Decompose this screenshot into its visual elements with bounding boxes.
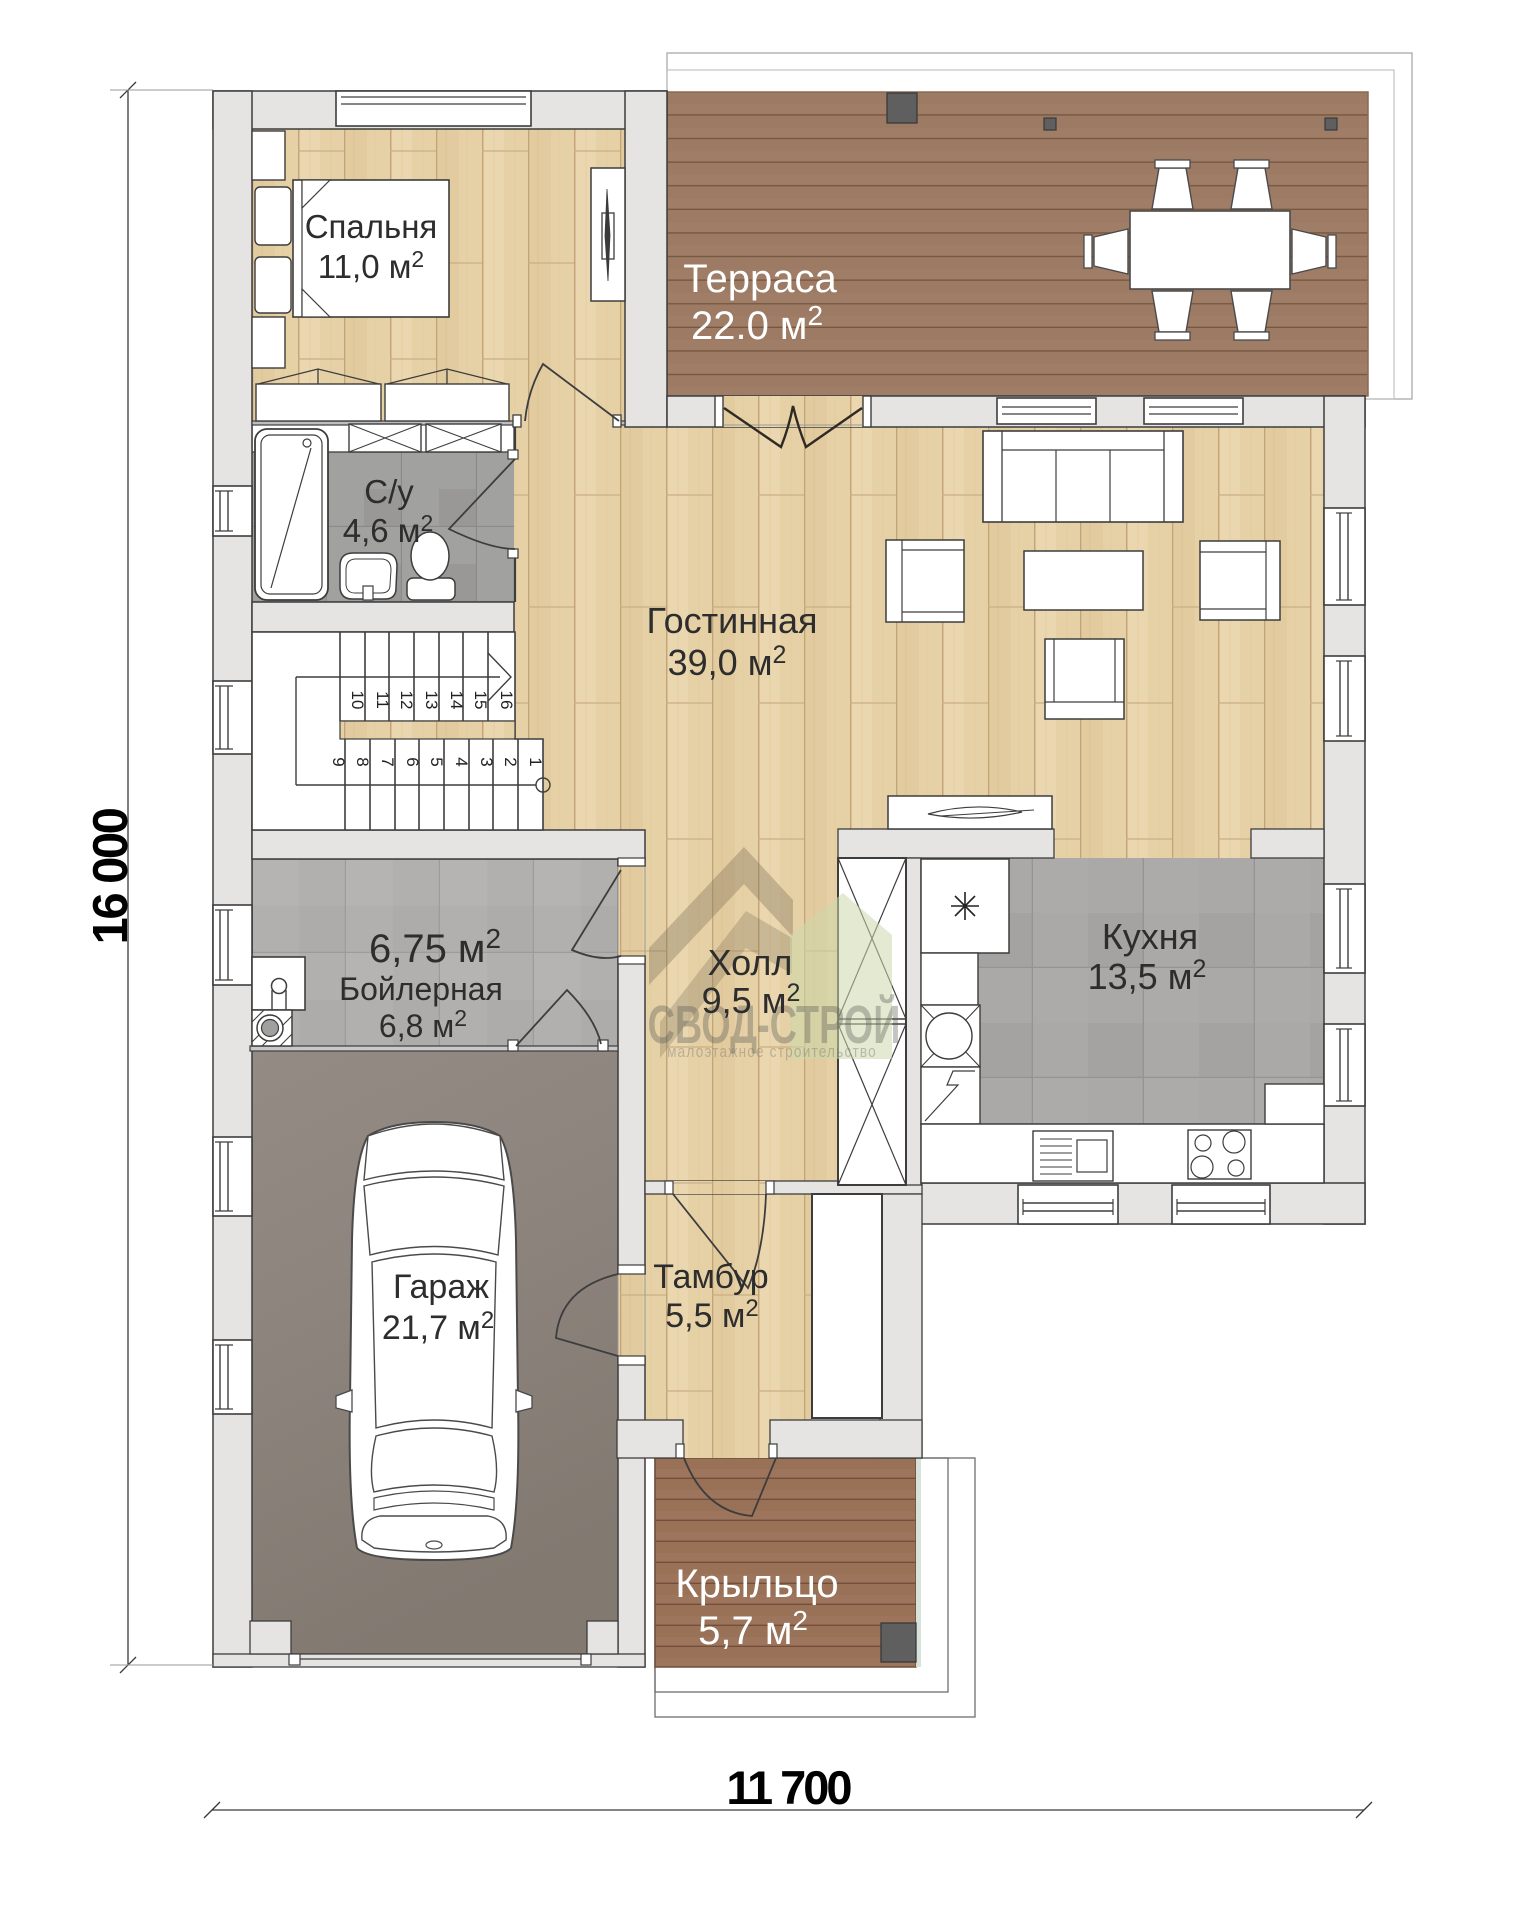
svg-text:5,5 м2: 5,5 м2	[665, 1295, 758, 1335]
svg-text:Терраса: Терраса	[683, 257, 837, 301]
svg-text:16: 16	[497, 691, 516, 710]
svg-text:4,6 м2: 4,6 м2	[343, 510, 434, 549]
svg-text:13,5 м2: 13,5 м2	[1088, 955, 1207, 997]
svg-text:Бойлерная: Бойлерная	[339, 971, 503, 1007]
svg-text:2: 2	[501, 757, 520, 766]
svg-text:12: 12	[397, 691, 416, 710]
svg-text:Гараж: Гараж	[393, 1268, 489, 1306]
svg-text:6,75 м2: 6,75 м2	[369, 923, 501, 971]
svg-text:Кухня: Кухня	[1102, 916, 1198, 957]
svg-text:8: 8	[353, 757, 372, 766]
svg-text:Гостинная: Гостинная	[647, 600, 818, 641]
svg-text:5,7 м2: 5,7 м2	[698, 1605, 808, 1653]
svg-text:13: 13	[422, 691, 441, 710]
svg-text:5: 5	[427, 757, 446, 766]
svg-text:9,5 м2: 9,5 м2	[702, 979, 801, 1021]
svg-text:11: 11	[373, 691, 392, 709]
svg-text:6,8 м2: 6,8 м2	[379, 1005, 467, 1044]
svg-text:Холл: Холл	[708, 942, 793, 983]
svg-text:16 000: 16 000	[84, 808, 138, 944]
svg-text:3: 3	[477, 757, 496, 766]
svg-text:11,0 м2: 11,0 м2	[318, 246, 424, 285]
svg-text:1: 1	[526, 757, 545, 766]
svg-text:С/у: С/у	[364, 473, 414, 510]
svg-text:7: 7	[378, 757, 397, 766]
svg-text:4: 4	[452, 757, 471, 766]
svg-text:11 700: 11 700	[726, 1761, 851, 1814]
svg-text:Спальня: Спальня	[305, 208, 438, 245]
svg-text:Тамбур: Тамбур	[653, 1258, 768, 1296]
svg-text:39,0 м2: 39,0 м2	[668, 641, 787, 683]
svg-text:9: 9	[329, 757, 348, 766]
svg-text:Крыльцо: Крыльцо	[675, 1562, 838, 1606]
svg-text:10: 10	[348, 691, 367, 710]
svg-text:14: 14	[447, 691, 466, 710]
svg-text:22.0 м2: 22.0 м2	[691, 300, 823, 348]
svg-text:6: 6	[403, 757, 422, 766]
svg-text:малоэтажное строительство: малоэтажное строительство	[667, 1043, 877, 1062]
svg-text:21,7 м2: 21,7 м2	[382, 1307, 494, 1347]
svg-text:15: 15	[471, 691, 490, 710]
